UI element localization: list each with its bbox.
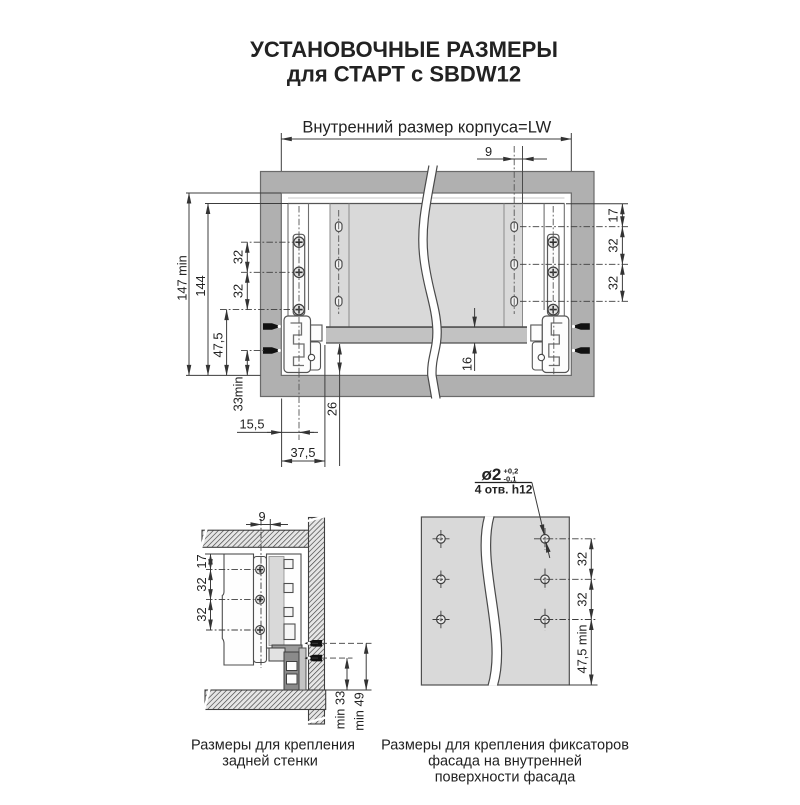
svg-text:32: 32 bbox=[231, 250, 246, 264]
svg-text:9: 9 bbox=[258, 509, 265, 524]
svg-text:9: 9 bbox=[485, 144, 492, 159]
svg-text:поверхности фасада: поверхности фасада bbox=[435, 770, 577, 786]
svg-text:17: 17 bbox=[194, 554, 209, 568]
svg-text:32: 32 bbox=[574, 552, 589, 566]
svg-text:47,5: 47,5 bbox=[210, 333, 225, 358]
svg-text:min 33: min 33 bbox=[332, 691, 347, 729]
svg-text:задней стенки: задней стенки bbox=[222, 754, 318, 770]
svg-text:min 49: min 49 bbox=[351, 692, 366, 730]
svg-text:4 отв. h12: 4 отв. h12 bbox=[475, 483, 533, 497]
svg-text:47,5 min: 47,5 min bbox=[574, 624, 589, 673]
svg-text:37,5: 37,5 bbox=[291, 445, 316, 460]
svg-text:147 min: 147 min bbox=[174, 255, 189, 301]
svg-text:ø2: ø2 bbox=[482, 465, 502, 484]
svg-text:17: 17 bbox=[605, 208, 620, 222]
svg-text:УСТАНОВОЧНЫЕ РАЗМЕРЫ: УСТАНОВОЧНЫЕ РАЗМЕРЫ bbox=[250, 37, 558, 62]
svg-text:фасада на внутренней: фасада на внутренней bbox=[428, 754, 582, 770]
svg-text:32: 32 bbox=[605, 238, 620, 252]
svg-text:для СТАРТ с SBDW12: для СТАРТ с SBDW12 bbox=[287, 62, 521, 87]
svg-text:16: 16 bbox=[459, 357, 474, 371]
svg-text:Внутренний размер корпуса=LW: Внутренний размер корпуса=LW bbox=[302, 119, 551, 137]
svg-text:32: 32 bbox=[231, 284, 246, 298]
svg-text:26: 26 bbox=[324, 402, 339, 416]
svg-text:Размеры для крепления: Размеры для крепления bbox=[191, 738, 355, 754]
svg-text:32: 32 bbox=[194, 577, 209, 591]
svg-text:15,5: 15,5 bbox=[240, 417, 265, 432]
svg-text:33min: 33min bbox=[231, 377, 246, 412]
svg-text:144: 144 bbox=[193, 275, 208, 296]
svg-text:32: 32 bbox=[574, 592, 589, 606]
svg-text:32: 32 bbox=[605, 276, 620, 290]
svg-text:Размеры для крепления фиксатор: Размеры для крепления фиксаторов bbox=[381, 738, 629, 754]
svg-text:32: 32 bbox=[194, 607, 209, 621]
